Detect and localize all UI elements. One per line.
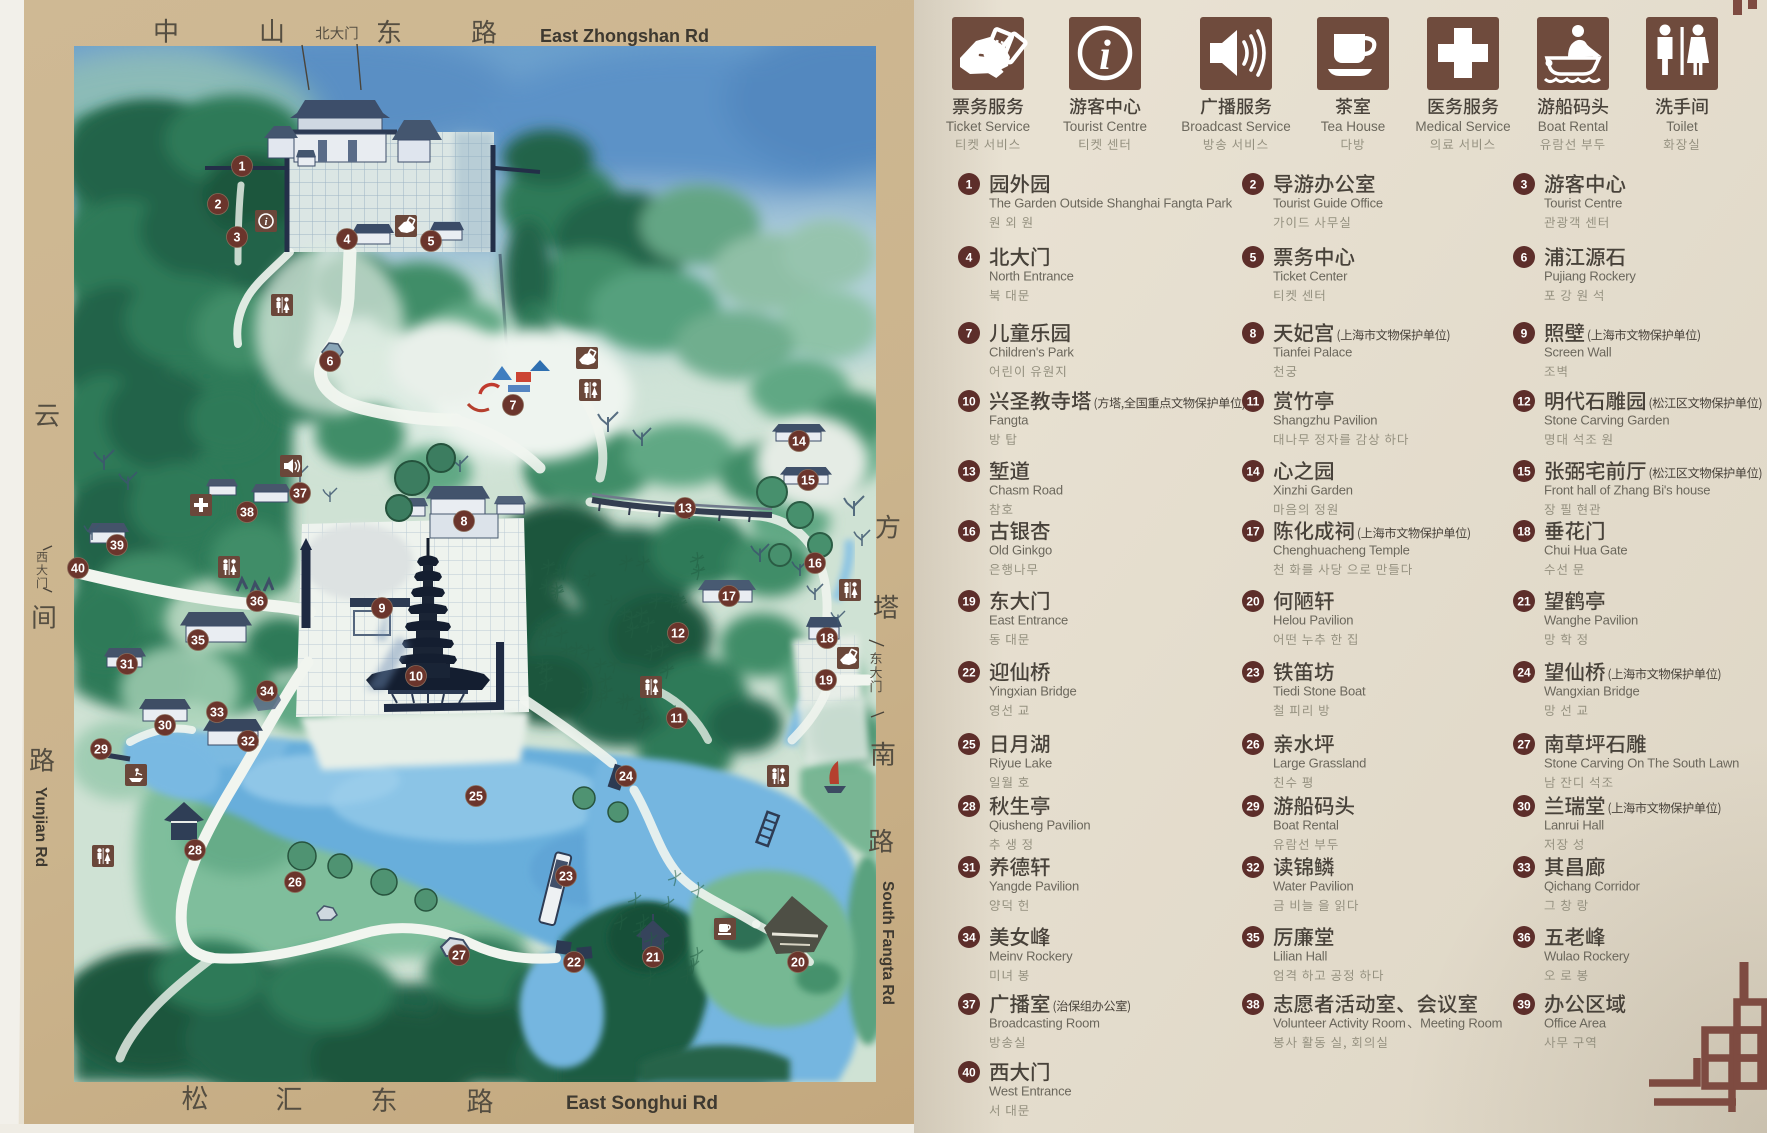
svg-text:Wulao Rockery: Wulao Rockery [1544,949,1630,964]
svg-text:Tourist Guide Office: Tourist Guide Office [1273,196,1383,211]
svg-text:15: 15 [801,474,815,488]
svg-text:28: 28 [188,844,202,858]
svg-text:36: 36 [1517,931,1531,945]
svg-text:27: 27 [1517,738,1531,752]
svg-text:26: 26 [1246,738,1260,752]
svg-text:4: 4 [966,251,973,265]
svg-text:18: 18 [820,632,834,646]
svg-text:Wanghe Pavilion: Wanghe Pavilion [1544,613,1638,628]
svg-text:20: 20 [1246,595,1260,609]
svg-text:17: 17 [1246,525,1260,539]
svg-text:32: 32 [1246,861,1260,875]
svg-text:Office Area: Office Area [1544,1016,1607,1031]
svg-text:8: 8 [461,515,468,529]
svg-text:35: 35 [1246,931,1260,945]
svg-text:Xinzhi Garden: Xinzhi Garden [1273,483,1353,498]
svg-text:29: 29 [94,743,108,757]
svg-text:Qiusheng Pavilion: Qiusheng Pavilion [989,818,1090,833]
svg-text:3: 3 [1521,178,1528,192]
svg-text:31: 31 [962,861,976,875]
svg-text:13: 13 [962,465,976,479]
svg-text:36: 36 [250,595,264,609]
svg-text:West Entrance: West Entrance [989,1084,1071,1099]
svg-text:Old Ginkgo: Old Ginkgo [989,543,1052,558]
svg-text:Stone Carving On The South Law: Stone Carving On The South Lawn [1544,756,1739,771]
svg-text:34: 34 [962,931,976,945]
svg-text:Meinv Rockery: Meinv Rockery [989,949,1073,964]
svg-text:Ticket Center: Ticket Center [1273,269,1348,284]
svg-text:Yangde Pavilion: Yangde Pavilion [989,879,1079,894]
svg-text:16: 16 [962,525,976,539]
svg-text:Shangzhu Pavilion: Shangzhu Pavilion [1273,413,1377,428]
svg-text:22: 22 [567,956,581,970]
svg-text:7: 7 [510,399,517,413]
svg-text:Tourist Centre: Tourist Centre [1544,196,1622,211]
svg-text:Tiedi Stone Boat: Tiedi Stone Boat [1273,684,1366,699]
svg-text:31: 31 [120,658,134,672]
svg-text:17: 17 [722,590,736,604]
svg-text:27: 27 [452,949,466,963]
svg-text:19: 19 [962,595,976,609]
svg-text:12: 12 [1517,395,1531,409]
svg-text:South Fangta Rd: South Fangta Rd [879,881,896,1005]
svg-text:Water Pavilion: Water Pavilion [1273,879,1354,894]
svg-text:23: 23 [559,870,573,884]
svg-text:14: 14 [792,435,806,449]
svg-text:2: 2 [215,198,222,212]
svg-text:4: 4 [344,233,351,247]
svg-text:30: 30 [1517,800,1531,814]
svg-text:40: 40 [71,562,85,576]
svg-text:Meeting Room: Meeting Room [1420,1016,1502,1031]
svg-text:8: 8 [1250,327,1257,341]
svg-text:20: 20 [791,956,805,970]
svg-text:5: 5 [1250,251,1257,265]
svg-text:Yunjian Rd: Yunjian Rd [32,787,49,867]
svg-text:Front hall of Zhang Bi's house: Front hall of Zhang Bi's house [1544,483,1710,498]
svg-text:29: 29 [1246,800,1260,814]
svg-text:11: 11 [1247,395,1260,409]
svg-text:Chenghuacheng Temple: Chenghuacheng Temple [1273,543,1410,558]
svg-text:28: 28 [962,800,976,814]
svg-text:21: 21 [646,951,660,965]
svg-text:38: 38 [1246,998,1260,1012]
svg-text:1: 1 [966,178,973,192]
svg-text:Medical Service: Medical Service [1415,119,1510,134]
svg-text:18: 18 [1517,525,1531,539]
svg-text:22: 22 [962,666,976,680]
svg-text:33: 33 [1517,861,1531,875]
svg-text:11: 11 [670,712,683,726]
svg-text:Chui Hua Gate: Chui Hua Gate [1544,543,1627,558]
svg-text:The Garden Outside Shanghai Fa: The Garden Outside Shanghai Fangta Park [989,196,1233,211]
svg-text:Broadcast Service: Broadcast Service [1181,119,1291,134]
svg-text:39: 39 [110,539,124,553]
svg-text:East Zhongshan Rd: East Zhongshan Rd [540,26,709,46]
svg-text:34: 34 [260,685,274,699]
svg-text:Volunteer Activity Room: Volunteer Activity Room [1273,1016,1406,1031]
svg-text:35: 35 [191,634,205,648]
svg-text:7: 7 [966,327,973,341]
svg-text:21: 21 [1517,595,1531,609]
svg-text:East Songhui Rd: East Songhui Rd [566,1093,718,1114]
svg-text:14: 14 [1246,465,1260,479]
svg-text:Boat Rental: Boat Rental [1273,818,1339,833]
svg-text:Stone Carving Garden: Stone Carving Garden [1544,413,1669,428]
svg-text:24: 24 [1517,666,1531,680]
svg-text:Tea House: Tea House [1321,119,1386,134]
svg-text:Tianfei Palace: Tianfei Palace [1273,345,1352,360]
svg-text:13: 13 [678,502,692,516]
svg-text:Boat Rental: Boat Rental [1538,119,1609,134]
svg-text:25: 25 [469,790,483,804]
svg-text:Screen Wall: Screen Wall [1544,345,1612,360]
svg-text:16: 16 [808,557,822,571]
svg-text:Large Grassland: Large Grassland [1273,756,1366,771]
svg-text:Chasm Road: Chasm Road [989,483,1063,498]
svg-text:Helou Pavilion: Helou Pavilion [1273,613,1353,628]
svg-text:40: 40 [962,1066,976,1080]
svg-text:12: 12 [671,627,685,641]
svg-text:East Entrance: East Entrance [989,613,1068,628]
svg-text:39: 39 [1517,998,1531,1012]
svg-text:North Entrance: North Entrance [989,269,1074,284]
svg-text:10: 10 [409,670,423,684]
svg-text:24: 24 [619,770,633,784]
svg-text:Wangxian Bridge: Wangxian Bridge [1544,684,1640,699]
svg-text:9: 9 [379,602,386,616]
svg-text:1: 1 [239,160,246,174]
svg-text:38: 38 [240,506,254,520]
svg-text:26: 26 [288,876,302,890]
svg-text:Lanrui Hall: Lanrui Hall [1544,818,1604,833]
svg-text:Qichang Corridor: Qichang Corridor [1544,879,1641,894]
svg-text:Yingxian Bridge: Yingxian Bridge [989,684,1077,699]
svg-text:Lilian Hall: Lilian Hall [1273,949,1327,964]
svg-text:37: 37 [962,998,976,1012]
svg-text:23: 23 [1246,666,1260,680]
svg-text:Riyue Lake: Riyue Lake [989,756,1052,771]
svg-text:25: 25 [962,738,976,752]
svg-text:32: 32 [241,735,255,749]
svg-text:i: i [1099,33,1111,79]
svg-text:Toilet: Toilet [1666,119,1698,134]
svg-text:Children's Park: Children's Park [989,345,1074,360]
svg-text:Ticket Service: Ticket Service [946,119,1030,134]
svg-text:6: 6 [327,355,334,369]
svg-text:37: 37 [293,487,307,501]
svg-text:30: 30 [158,719,172,733]
svg-text:2: 2 [1250,178,1257,192]
svg-text:3: 3 [234,231,241,245]
svg-text:15: 15 [1517,465,1531,479]
svg-text:Pujiang Rockery: Pujiang Rockery [1544,269,1636,284]
svg-text:Broadcasting Room: Broadcasting Room [989,1016,1100,1031]
svg-text:Fangta: Fangta [989,413,1029,428]
svg-text:10: 10 [962,395,976,409]
svg-text:6: 6 [1521,251,1528,265]
svg-text:19: 19 [819,674,833,688]
svg-text:Tourist Centre: Tourist Centre [1063,119,1147,134]
svg-text:33: 33 [210,706,224,720]
svg-text:5: 5 [428,235,435,249]
svg-text:9: 9 [1521,327,1528,341]
